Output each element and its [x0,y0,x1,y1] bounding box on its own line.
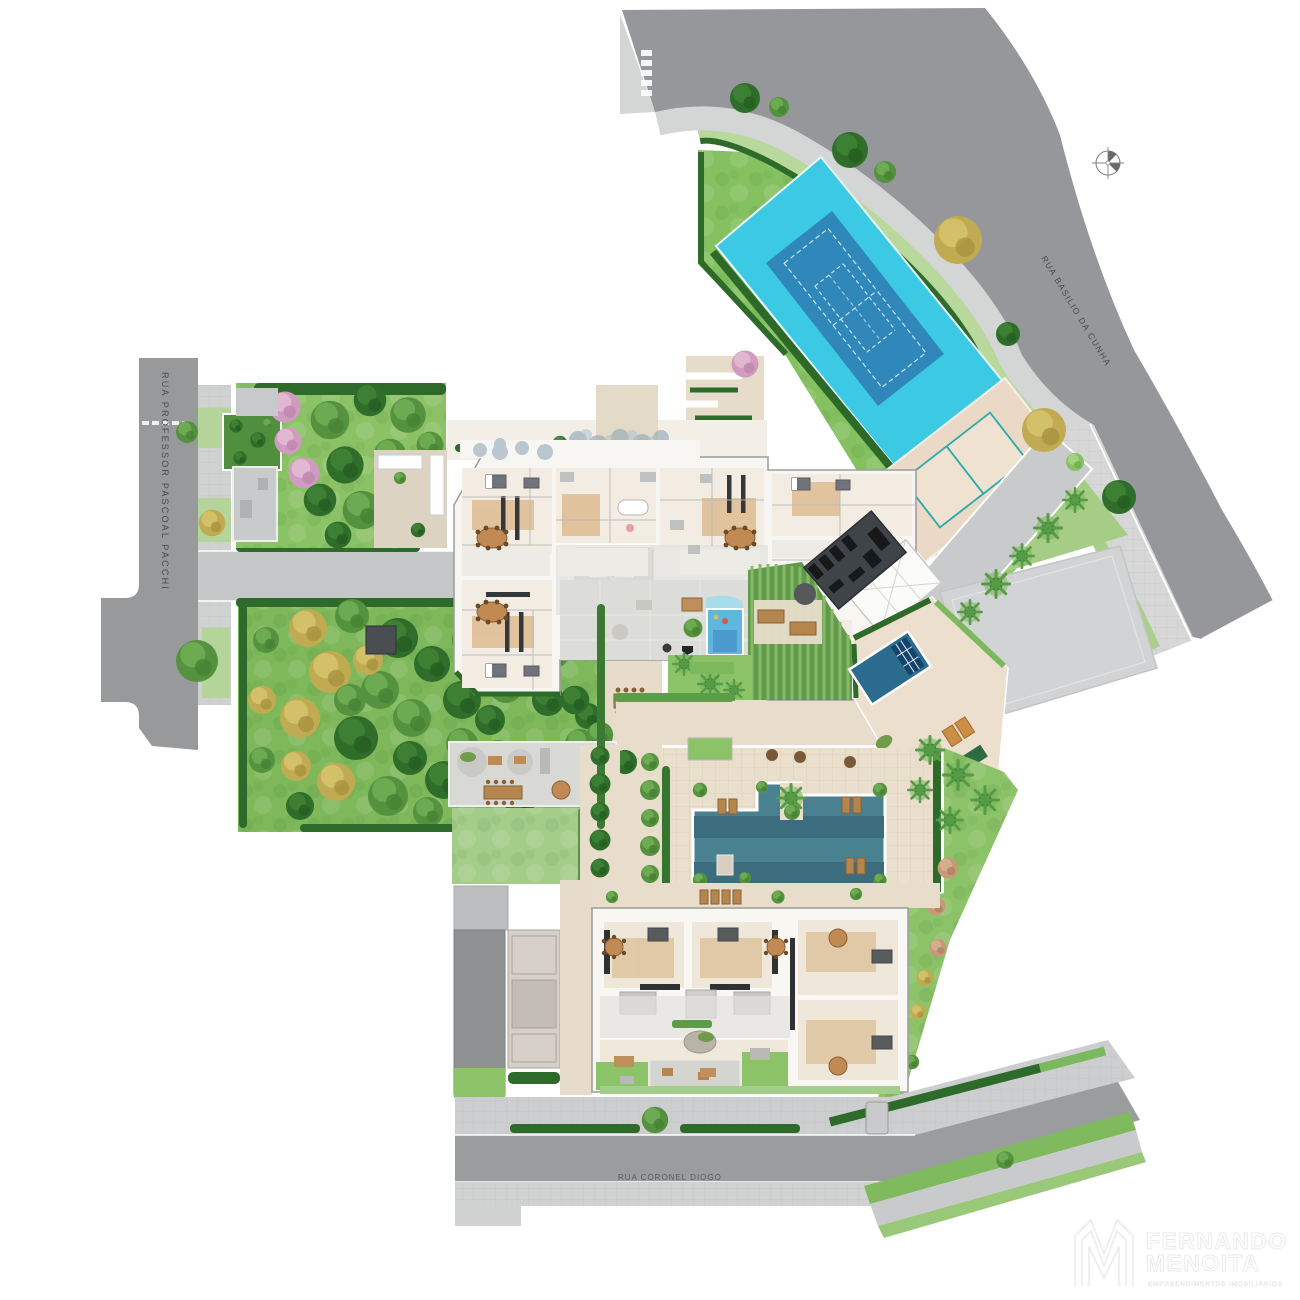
svg-text:MENOITA: MENOITA [1146,1250,1260,1276]
svg-text:RUA CORONEL DIOGO: RUA CORONEL DIOGO [618,1173,722,1182]
svg-text:RUA PROFESSOR PASCOAL PACCHI: RUA PROFESSOR PASCOAL PACCHI [160,372,170,591]
svg-text:EMPREENDIMENTOS IMOBILIARIOS: EMPREENDIMENTOS IMOBILIARIOS [1148,1281,1283,1288]
